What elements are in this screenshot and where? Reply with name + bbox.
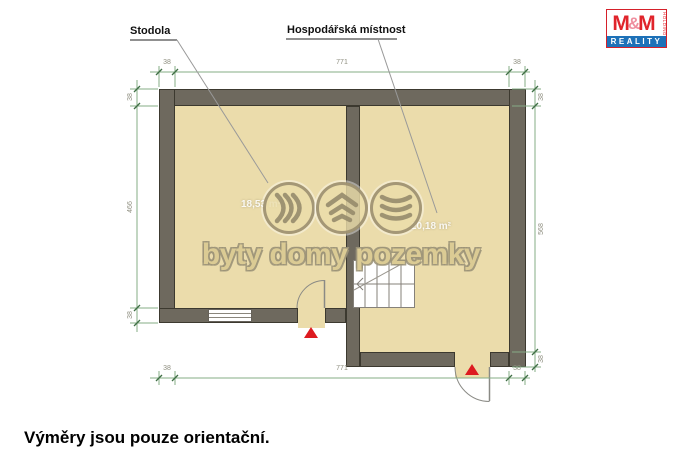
- dimension-top: 38 771 38: [150, 59, 530, 87]
- dim-left-top: 38: [127, 93, 134, 101]
- mm-reality-logo: M&M HOLDING REALITY: [606, 9, 667, 48]
- dim-bottom-left: 38: [163, 365, 171, 372]
- label-leaders: [130, 39, 437, 213]
- dim-bottom-middle: 771: [336, 365, 348, 372]
- footer-note: Výměry jsou pouze orientační.: [24, 428, 270, 448]
- logo-mm-text: M&M: [607, 10, 660, 36]
- dim-top-left: 38: [163, 59, 171, 66]
- room-label-hospodarska: Hospodářská místnost: [287, 25, 406, 36]
- dim-right-middle: 568: [538, 223, 545, 235]
- logo-m2: M: [638, 13, 655, 34]
- dim-left-middle: 466: [127, 201, 134, 213]
- dim-top-middle: 771: [336, 59, 348, 66]
- logo-holding-text: HOLDING: [662, 12, 667, 36]
- dim-right-bottom: 38: [538, 355, 545, 363]
- dimension-layer: 38 771 38 38 771 38: [0, 0, 686, 457]
- dimension-left: 38 466 38: [127, 80, 158, 332]
- dimension-right: 38 568 38: [512, 80, 545, 372]
- floor-plan-page: 18,53 m² 20,18 m²: [0, 0, 686, 457]
- leader-stodola: [177, 40, 268, 183]
- room-label-stodola: Stodola: [130, 26, 170, 37]
- leader-hospodarska: [378, 39, 437, 213]
- dim-bottom-right: 38: [513, 365, 521, 372]
- dim-right-top: 38: [538, 93, 545, 101]
- logo-m1: M: [612, 13, 629, 34]
- dim-left-bottom: 38: [127, 311, 134, 319]
- dim-top-right: 38: [513, 59, 521, 66]
- logo-reality-bar: REALITY: [607, 36, 666, 47]
- dimension-bottom: 38 771 38: [150, 365, 530, 385]
